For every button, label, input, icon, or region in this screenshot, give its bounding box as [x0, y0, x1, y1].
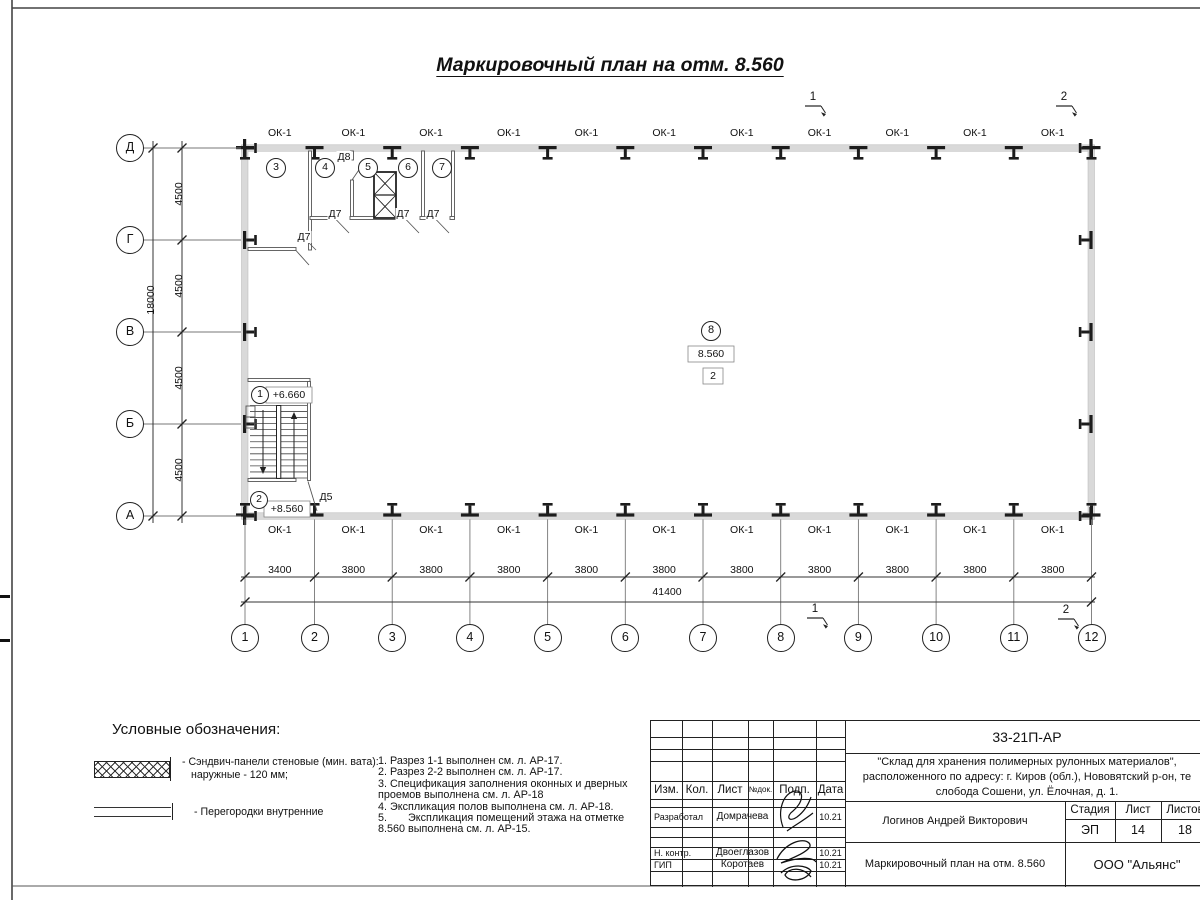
- dim-label: 3800: [575, 564, 598, 576]
- axis-bubble-bottom: 2: [301, 624, 329, 652]
- stamp-date: 10.21: [816, 859, 845, 871]
- col-header-izm: Изм.: [651, 781, 682, 799]
- door-label: Д8: [337, 151, 352, 163]
- col-header-data: Дата: [816, 781, 845, 799]
- dim-label: 4500: [173, 274, 185, 297]
- dim-label: 3800: [652, 564, 675, 576]
- dim-label: 3800: [342, 564, 365, 576]
- axis-bubble-bottom: 6: [611, 624, 639, 652]
- signature-icon: [773, 833, 819, 885]
- room-mark: 7: [432, 158, 452, 178]
- axis-bubble-left: Б: [116, 410, 144, 438]
- dim-label: 4500: [173, 182, 185, 205]
- swatch-tick: [172, 803, 173, 820]
- axis-bubble-bottom: 8: [767, 624, 795, 652]
- window-mark-label: ОК-1: [575, 524, 599, 536]
- window-mark-label: ОК-1: [730, 524, 754, 536]
- room-mark: 6: [398, 158, 418, 178]
- company-name: ООО "Альянс": [1065, 842, 1200, 887]
- col-header-ndok: №док.: [748, 781, 773, 799]
- stage-value: ЭП: [1065, 819, 1115, 842]
- stamp-name: Домрачева: [712, 807, 773, 827]
- note-line: 8.560 выполнена см. л. АР-15.: [378, 824, 628, 835]
- axis-bubble-left: В: [116, 318, 144, 346]
- door-label: Д7: [297, 231, 312, 243]
- window-mark-label: ОК-1: [268, 524, 292, 536]
- window-mark-label: ОК-1: [1041, 524, 1065, 536]
- dim-label: 3800: [419, 564, 442, 576]
- axis-bubble-bottom: 1: [231, 624, 259, 652]
- chief-name: Логинов Андрей Викторович: [845, 801, 1065, 842]
- signature-icon: [773, 783, 816, 835]
- axis-bubble-bottom: 4: [456, 624, 484, 652]
- elevation-label: +8.560: [271, 503, 303, 515]
- partition-swatch-icon: [94, 807, 171, 817]
- section-mark-label: 1: [810, 91, 816, 103]
- room-mark: 8: [701, 321, 721, 341]
- door-label: Д7: [426, 208, 441, 220]
- window-mark-label: ОК-1: [497, 524, 521, 536]
- room-mark: 3: [266, 158, 286, 178]
- axis-bubble-bottom: 10: [922, 624, 950, 652]
- window-mark-label: ОК-1: [419, 524, 443, 536]
- stage-label: Стадия: [1065, 801, 1115, 819]
- axis-bubble-left: Д: [116, 134, 144, 162]
- room-mark: 4: [315, 158, 335, 178]
- legend-item-label: наружные - 120 мм;: [191, 769, 288, 781]
- window-mark-label: ОК-1: [730, 127, 754, 139]
- swatch-tick: [170, 757, 171, 781]
- window-mark-label: ОК-1: [268, 127, 292, 139]
- sheets-value: 18: [1161, 819, 1200, 842]
- stamp-date: 10.21: [816, 807, 845, 827]
- sandwich-panel-swatch-icon: [94, 761, 170, 778]
- stamp-role: Разработал: [652, 807, 714, 827]
- section-mark-label: 2: [1061, 91, 1067, 103]
- notes: 1. Разрез 1-1 выполнен см. л. АР-17. 2. …: [378, 756, 628, 836]
- dim-label: 3800: [1041, 564, 1064, 576]
- dim-label: 3800: [963, 564, 986, 576]
- window-mark-label: ОК-1: [342, 127, 366, 139]
- dim-total-label: 41400: [652, 586, 681, 598]
- section-mark-label: 1: [812, 603, 818, 615]
- legend-item-label: - Сэндвич-панели стеновые (мин. вата):: [182, 756, 379, 768]
- dim-label: 4500: [173, 366, 185, 389]
- sheets-label: Листов: [1161, 801, 1200, 819]
- sheet-label: Лист: [1115, 801, 1161, 819]
- col-header-list: Лист: [712, 781, 748, 799]
- window-mark-label: ОК-1: [575, 127, 599, 139]
- elevation-label: +6.660: [273, 389, 305, 401]
- legend-item-label: - Перегородки внутренние: [194, 806, 323, 818]
- title-block: Изм. Кол. Лист №док. Подп. Дата Разработ…: [650, 720, 1200, 886]
- window-mark-label: ОК-1: [963, 524, 987, 536]
- dim-label: 4500: [173, 458, 185, 481]
- section-mark-label: 2: [1063, 604, 1069, 616]
- axis-bubble-bottom: 7: [689, 624, 717, 652]
- axis-bubble-bottom: 3: [378, 624, 406, 652]
- project-line: расположенного по адресу: г. Киров (обл.…: [845, 769, 1200, 785]
- room-mark: 5: [358, 158, 378, 178]
- stamp-date: 10.21: [816, 847, 845, 859]
- dim-total-label: 18000: [145, 285, 157, 314]
- window-mark-label: ОК-1: [963, 127, 987, 139]
- dim-label: 3400: [268, 564, 291, 576]
- window-mark-label: ОК-1: [419, 127, 443, 139]
- room-note-label: 2: [710, 370, 716, 382]
- stamp-role: ГИП: [652, 859, 714, 871]
- window-mark-label: ОК-1: [652, 127, 676, 139]
- window-mark-label: ОК-1: [1041, 127, 1065, 139]
- project-line: слобода Сошени, ул. Ёлочная, д. 1.: [845, 784, 1200, 800]
- doc-title: Маркировочный план на отм. 8.560: [845, 842, 1065, 887]
- door-label: Д5: [319, 491, 334, 503]
- room-mark: 2: [250, 491, 268, 509]
- dim-label: 3800: [497, 564, 520, 576]
- dim-label: 3800: [886, 564, 909, 576]
- stamp-name: Коротаев: [712, 859, 773, 871]
- page-title: Маркировочный план на отм. 8.560: [390, 54, 830, 77]
- axis-bubble-bottom: 12: [1078, 624, 1106, 652]
- stamp-role: Н. контр.: [652, 847, 714, 859]
- dim-label: 3800: [808, 564, 831, 576]
- axis-bubble-left: Г: [116, 226, 144, 254]
- door-label: Д7: [328, 208, 343, 220]
- axis-bubble-bottom: 5: [534, 624, 562, 652]
- window-mark-label: ОК-1: [808, 524, 832, 536]
- window-mark-label: ОК-1: [497, 127, 521, 139]
- window-mark-label: ОК-1: [652, 524, 676, 536]
- sheet-value: 14: [1115, 819, 1161, 842]
- note-line: проемов выполнена см. л. АР-18: [378, 790, 628, 801]
- window-mark-label: ОК-1: [342, 524, 366, 536]
- legend-heading: Условные обозначения:: [112, 721, 280, 738]
- room-mark: 1: [251, 386, 269, 404]
- door-label: Д7: [396, 208, 411, 220]
- elevation-label: 8.560: [698, 348, 724, 360]
- axis-bubble-bottom: 11: [1000, 624, 1028, 652]
- project-line: "Склад для хранения полимерных рулонных …: [845, 754, 1200, 770]
- stamp-name: Двоеглазов: [712, 847, 773, 859]
- axis-bubble-bottom: 9: [844, 624, 872, 652]
- window-mark-label: ОК-1: [885, 524, 909, 536]
- project-code: 33-21П-АР: [845, 721, 1200, 753]
- col-header-kol: Кол.: [682, 781, 712, 799]
- dim-label: 3800: [730, 564, 753, 576]
- window-mark-label: ОК-1: [808, 127, 832, 139]
- window-mark-label: ОК-1: [885, 127, 909, 139]
- axis-bubble-left: А: [116, 502, 144, 530]
